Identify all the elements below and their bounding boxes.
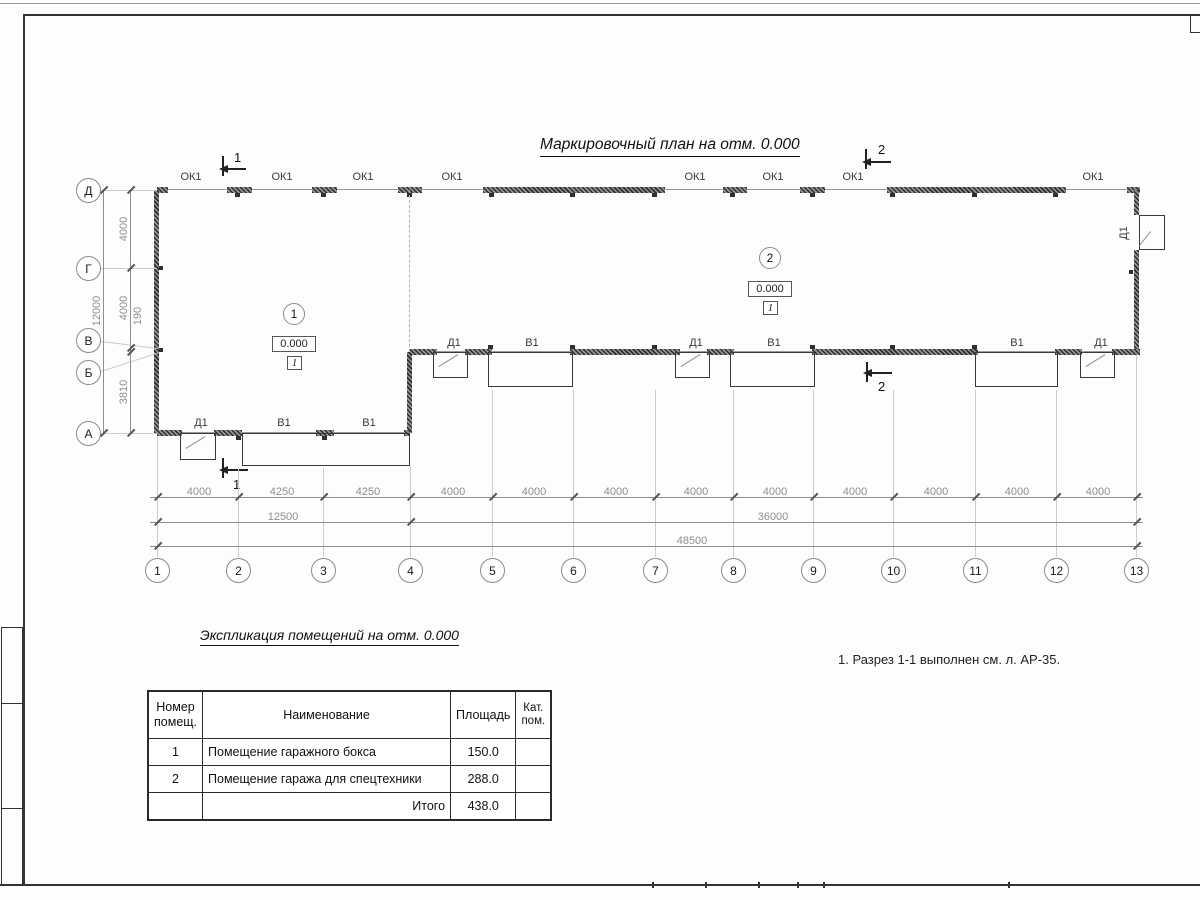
grid-line — [733, 390, 734, 557]
partition-dashed-line — [409, 190, 410, 352]
room-number-circle: 2 — [759, 247, 781, 269]
column-mark — [810, 193, 815, 197]
door-vestibule — [1139, 215, 1165, 250]
grid-axis-8: 8 — [721, 558, 746, 583]
column-mark — [652, 345, 657, 349]
column-mark — [235, 193, 240, 197]
door-label: Д1 — [683, 337, 709, 349]
dim-label: 36000 — [743, 511, 803, 523]
header-area: Площадь — [451, 691, 516, 738]
drawing-sheet: Маркировочный план на отм. 0.000 ОК1 ОК1… — [0, 0, 1200, 900]
grid-axis-4: 4 — [398, 558, 423, 583]
axis-row-D: Д — [76, 178, 101, 203]
room-floor-type: 1 — [287, 356, 302, 370]
column-mark — [972, 193, 977, 197]
grid-axis-11: 11 — [963, 558, 988, 583]
gate-label: В1 — [761, 337, 787, 349]
column-mark — [972, 345, 977, 349]
column-mark — [570, 345, 575, 349]
gate-label: В1 — [1004, 337, 1030, 349]
dim-label: 48500 — [662, 535, 722, 547]
table-header-row: Номер помещ. Наименование Площадь Кат. п… — [148, 691, 551, 738]
section-label: 1 — [234, 150, 241, 165]
window-label: ОК1 — [178, 171, 204, 183]
frame-tick — [652, 882, 654, 888]
room-elevation: 0.000 — [272, 336, 316, 352]
right-wall — [1134, 190, 1139, 215]
cell-name: Помещение гаражного бокса — [203, 738, 451, 765]
section-label: 1 — [233, 477, 240, 492]
total-label: Итого — [203, 792, 451, 820]
column-mark — [159, 266, 163, 270]
dim-label: 12500 — [253, 511, 313, 523]
column-mark — [652, 193, 657, 197]
gate-apron — [488, 352, 573, 387]
grid-line — [492, 390, 493, 557]
door-vestibule — [180, 433, 216, 460]
door-label: Д1 — [1118, 220, 1130, 246]
frame-left — [23, 14, 25, 886]
frame-tick — [1008, 882, 1010, 888]
window-label: ОК1 — [760, 171, 786, 183]
column-mark — [730, 193, 735, 197]
step-wall — [407, 352, 412, 433]
grid-line — [975, 390, 976, 557]
frame-bottom — [0, 884, 1200, 886]
window-label: ОК1 — [439, 171, 465, 183]
section-arrow-icon — [863, 369, 872, 377]
dim-line-row3 — [150, 546, 1143, 547]
column-mark — [159, 348, 163, 352]
dim-label: 4000 — [914, 486, 958, 498]
column-mark — [236, 436, 241, 440]
grid-line — [410, 466, 411, 557]
table-title: Экспликация помещений на отм. 0.000 — [200, 627, 459, 646]
column-mark — [488, 345, 493, 349]
axis-row-B: Б — [76, 360, 101, 385]
window-label: ОК1 — [682, 171, 708, 183]
frame-margin-divider — [1, 703, 23, 704]
dim-line-left-total — [103, 190, 104, 433]
column-mark — [890, 193, 895, 197]
dim-label: 4000 — [1076, 486, 1120, 498]
door-label: Д1 — [441, 337, 467, 349]
dim-label: 3810 — [118, 372, 130, 412]
frame-tick — [797, 882, 799, 888]
left-wall — [154, 190, 159, 433]
dim-label: 4000 — [177, 486, 221, 498]
grid-line — [813, 390, 814, 557]
gate-apron — [730, 352, 815, 387]
window-label: ОК1 — [350, 171, 376, 183]
cell-room-number: 2 — [148, 765, 203, 792]
axis-row-A: А — [76, 421, 101, 446]
gate-label: В1 — [271, 417, 297, 429]
window-label: ОК1 — [840, 171, 866, 183]
section-label: 2 — [878, 379, 885, 394]
total-area: 438.0 — [451, 792, 516, 820]
grid-axis-7: 7 — [643, 558, 668, 583]
frame-tick — [758, 882, 760, 888]
axis-leader — [95, 268, 157, 269]
dim-label: 4000 — [512, 486, 556, 498]
frame-tick — [823, 882, 825, 888]
section-label: 2 — [878, 142, 885, 157]
window-label: ОК1 — [1080, 171, 1106, 183]
cell-area: 288.0 — [451, 765, 516, 792]
wall-segment — [723, 187, 747, 193]
dim-label: 4250 — [346, 486, 390, 498]
grid-line — [1136, 355, 1137, 557]
column-mark — [1129, 270, 1133, 274]
section-arrow-icon — [219, 466, 228, 474]
frame-margin-divider — [1, 808, 23, 809]
cell-empty — [516, 792, 551, 820]
grid-line — [1056, 390, 1057, 557]
grid-axis-6: 6 — [561, 558, 586, 583]
grid-axis-13: 13 — [1124, 558, 1149, 583]
section-arrow-icon — [219, 165, 228, 173]
dim-label: 4000 — [995, 486, 1039, 498]
window-label: ОК1 — [269, 171, 295, 183]
grid-axis-5: 5 — [480, 558, 505, 583]
room-schedule-table: Номер помещ. Наименование Площадь Кат. п… — [147, 690, 552, 821]
cell-name: Помещение гаража для спецтехники — [203, 765, 451, 792]
column-mark — [1053, 193, 1058, 197]
axis-row-V: В — [76, 328, 101, 353]
header-name: Наименование — [203, 691, 451, 738]
dim-line-left — [130, 190, 131, 433]
cell-room-number: 1 — [148, 738, 203, 765]
column-mark — [321, 193, 326, 197]
frame-margin-boxes — [1, 627, 23, 885]
cell-category — [516, 738, 551, 765]
table-row: 1 Помещение гаражного бокса 150.0 — [148, 738, 551, 765]
axis-row-G: Г — [76, 256, 101, 281]
dim-label: 4000 — [118, 288, 130, 328]
grid-axis-3: 3 — [311, 558, 336, 583]
gate-label: В1 — [356, 417, 382, 429]
grid-axis-9: 9 — [801, 558, 826, 583]
wall-segment — [1055, 349, 1082, 355]
grid-line — [893, 390, 894, 557]
header-category: Кат. пом. — [516, 691, 551, 738]
room-number-circle: 1 — [283, 303, 305, 325]
dim-label: 4250 — [260, 486, 304, 498]
gate-label: В1 — [519, 337, 545, 349]
column-mark — [570, 193, 575, 197]
grid-axis-12: 12 — [1044, 558, 1069, 583]
dim-label: 4000 — [594, 486, 638, 498]
dim-label: 190 — [132, 299, 144, 333]
plan-title: Маркировочный план на отм. 0.000 — [540, 136, 800, 157]
room-floor-type: 1 — [763, 301, 778, 315]
frame-tick — [705, 882, 707, 888]
column-mark — [810, 345, 815, 349]
dim-label: 4000 — [118, 209, 130, 249]
grid-axis-2: 2 — [226, 558, 251, 583]
grid-line — [323, 468, 324, 557]
sheet-edge-line — [0, 3, 1200, 4]
header-room-number: Номер помещ. — [148, 691, 203, 738]
door-label: Д1 — [1088, 337, 1114, 349]
grid-line — [655, 390, 656, 557]
drawing-note: 1. Разрез 1-1 выполнен см. л. АР-35. — [838, 652, 1060, 667]
section-arrow-icon — [862, 158, 871, 166]
wall-segment — [157, 430, 182, 436]
frame-top — [23, 14, 1200, 16]
column-mark — [890, 345, 895, 349]
gate-apron — [975, 352, 1058, 387]
wall-segment — [570, 349, 680, 355]
grid-axis-10: 10 — [881, 558, 906, 583]
cell-category — [516, 765, 551, 792]
frame-corner-box — [1190, 14, 1200, 33]
grid-line — [573, 390, 574, 557]
grid-line — [238, 468, 239, 557]
column-mark — [489, 193, 494, 197]
table-total-row: Итого 438.0 — [148, 792, 551, 820]
dim-label: 4000 — [674, 486, 718, 498]
wall-segment — [812, 349, 978, 355]
dim-label: 12000 — [91, 291, 103, 331]
cell-empty — [148, 792, 203, 820]
grid-axis-1: 1 — [145, 558, 170, 583]
gate-apron — [242, 433, 410, 466]
right-wall — [1134, 250, 1139, 352]
dim-label: 4000 — [833, 486, 877, 498]
table-row: 2 Помещение гаража для спецтехники 288.0 — [148, 765, 551, 792]
dim-label: 4000 — [431, 486, 475, 498]
room-elevation: 0.000 — [748, 281, 792, 297]
dim-label: 4000 — [753, 486, 797, 498]
cell-area: 150.0 — [451, 738, 516, 765]
door-label: Д1 — [188, 417, 214, 429]
